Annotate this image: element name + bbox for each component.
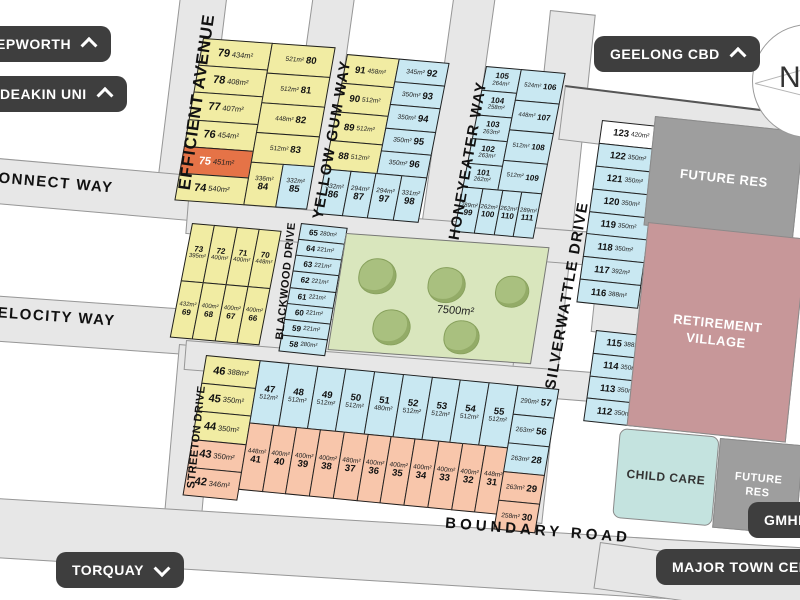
lot-number-label: 66 <box>248 314 258 323</box>
lot-number-label: 32 <box>462 476 474 487</box>
lot-area-label: 512m² <box>356 125 376 134</box>
lot-number-label: 75 <box>198 155 212 168</box>
lot-number-label: 36 <box>367 467 379 478</box>
lot-area-label: 512m² <box>512 142 530 149</box>
lot-area-label: 512m² <box>402 408 421 417</box>
lot-number-label: 68 <box>203 310 213 319</box>
lot-area-label: 512m² <box>506 172 524 179</box>
lot-number-label: 81 <box>300 85 312 97</box>
lot-number-label: 109 <box>525 173 540 183</box>
lot-number-label: 59 <box>291 324 301 334</box>
lot-area-label: 521m² <box>285 56 305 64</box>
parcel-label: FUTURE RES <box>729 470 787 502</box>
lot-number-label: 31 <box>486 478 498 489</box>
lot-number-label: 119 <box>600 218 617 231</box>
poi-pill-label: GEELONG CBD <box>610 46 720 62</box>
lot-number-label: 85 <box>288 185 300 196</box>
lot-area-label: 512m² <box>361 96 381 105</box>
lot-number-label: 111 <box>520 214 534 223</box>
parcel-retirement-village[interactable]: RETIREMENT VILLAGE <box>627 222 800 443</box>
lot-area-label: 524m² <box>524 82 542 89</box>
lot-area-label: 221m² <box>302 326 320 334</box>
lot-area-label: 540m² <box>207 184 230 194</box>
lot-area-label: 280m² <box>319 231 337 239</box>
lot-area-label: 420m² <box>630 132 649 141</box>
lot-area-label: 290m² <box>520 397 540 406</box>
lot-number-label: 106 <box>542 82 557 92</box>
lot-area-label: 280m² <box>300 342 318 350</box>
lot-area-label: 388m² <box>227 367 250 378</box>
lot-area-label: 263m² <box>478 153 496 161</box>
lot-number-label: 87 <box>352 193 364 204</box>
park-area-label: 7500m² <box>436 303 475 317</box>
lot-area-label: 350m² <box>627 154 646 163</box>
lot-number-label: 91 <box>354 64 367 76</box>
lot-number-label: 116 <box>590 286 607 299</box>
lot-area-label: 350m² <box>614 245 633 254</box>
lot-area-label: 350m² <box>401 91 421 100</box>
lot-number-label: 83 <box>289 144 301 156</box>
lot-area-label: 350m² <box>621 200 640 209</box>
lot-area-label: 408m² <box>226 77 249 87</box>
lot-number-label: 94 <box>417 113 430 125</box>
lot-number-label: 110 <box>500 212 514 221</box>
estate-masterplan-map: 79434m²78408m²77407m²76454m²75451m²74540… <box>0 0 800 600</box>
lot-area-label: 345m² <box>406 68 426 77</box>
lot-number-label: 38 <box>320 462 332 473</box>
lot-number-label: 92 <box>426 68 439 80</box>
parcel-label: FUTURE RES <box>679 166 768 191</box>
poi-pill-label: EPWORTH <box>0 36 71 52</box>
lot-number-label: 33 <box>438 473 450 484</box>
lot-number-label: 29 <box>526 483 538 495</box>
parcel-label: CHILD CARE <box>626 466 706 488</box>
lot-area-label: 263m² <box>515 426 535 435</box>
lot-area-label: 512m² <box>316 399 335 408</box>
lot-number-label: 112 <box>596 405 613 418</box>
tree-icon <box>356 257 400 295</box>
lot-107[interactable]: 448m²107 <box>509 99 560 134</box>
lot-116[interactable]: 116388m² <box>576 279 641 309</box>
poi-pill-torquay[interactable]: TORQUAY <box>56 552 184 588</box>
poi-pill-gmhba[interactable]: GMHBA <box>748 502 800 538</box>
lot-area-label: 350m² <box>213 451 236 462</box>
lot-number-label: 44 <box>203 420 217 433</box>
chevron-up-icon <box>81 37 98 54</box>
lot-area-label: 512m² <box>280 86 300 94</box>
lot-area-label: 454m² <box>217 130 240 140</box>
lot-area-label: 350m² <box>217 423 240 434</box>
lot-number-label: 88 <box>337 150 350 162</box>
lot-number-label: 98 <box>403 197 415 208</box>
lot-area-label: 350m² <box>392 137 412 146</box>
poi-pill-geelong-cbd[interactable]: GEELONG CBD <box>594 36 760 72</box>
lot-number-label: 65 <box>308 228 318 238</box>
lot-number-label: 34 <box>415 471 427 482</box>
lot-106[interactable]: 524m²106 <box>515 69 566 104</box>
lot-area-label: 350m² <box>388 159 408 168</box>
chevron-up-icon <box>96 87 113 104</box>
lot-number-label: 41 <box>249 455 261 466</box>
lot-number-label: 117 <box>593 264 610 277</box>
lot-number-label: 84 <box>256 183 268 194</box>
lot-area-label: 221m² <box>317 247 335 255</box>
lot-number-label: 46 <box>212 364 226 377</box>
lot-area-label: 221m² <box>311 278 329 286</box>
lot-number-label: 57 <box>540 397 552 409</box>
lot-area-label: 264m² <box>492 80 510 88</box>
lot-area-label: 258m² <box>487 104 505 112</box>
lot-area-label: 448m² <box>274 115 294 123</box>
lot-number-label: 40 <box>273 457 285 468</box>
lot-area-label: 350m² <box>397 114 417 123</box>
lot-number-label: 28 <box>530 454 542 466</box>
lot-area-label: 400m² <box>210 255 228 263</box>
lot-number-label: 114 <box>602 360 619 373</box>
lot-area-label: 480m² <box>373 405 392 414</box>
lot-area-label: 346m² <box>208 479 231 490</box>
lot-number-label: 45 <box>208 392 222 405</box>
chevron-up-icon <box>729 47 746 64</box>
lot-number-label: 118 <box>597 241 614 254</box>
compass-north-label: N <box>779 61 800 95</box>
lot-number-label: 122 <box>609 150 626 163</box>
lot-number-label: 89 <box>343 122 356 134</box>
poi-pill-label: GMHBA <box>764 512 800 528</box>
parcel-child-care[interactable]: CHILD CARE <box>612 428 719 526</box>
lot-number-label: 76 <box>202 128 216 141</box>
poi-pill-deakin-uni[interactable]: DEAKIN UNI <box>0 76 127 112</box>
parcel-label: RETIREMENT VILLAGE <box>660 310 773 354</box>
poi-pill-label: TORQUAY <box>72 562 144 578</box>
lot-number-label: 96 <box>408 159 421 171</box>
parcel-future-res-north[interactable]: FUTURE RES <box>644 116 800 241</box>
lot-number-label: 61 <box>297 292 307 302</box>
lot-area-label: 350m² <box>222 395 245 406</box>
poi-pill-epworth[interactable]: EPWORTH <box>0 26 111 62</box>
lot-area-label: 263m² <box>506 483 526 492</box>
lot-area-label: 458m² <box>367 67 387 76</box>
lot-number-label: 123 <box>612 128 629 141</box>
lot-number-label: 80 <box>305 55 317 67</box>
lot-number-label: 113 <box>599 383 616 396</box>
lot-area-label: 512m² <box>269 145 289 153</box>
lot-number-label: 60 <box>294 308 304 318</box>
lot-area-label: 221m² <box>305 310 323 318</box>
lot-number-label: 90 <box>348 93 361 105</box>
lot-area-label: 395m² <box>188 253 206 261</box>
lot-area-label: 388m² <box>608 290 627 299</box>
lot-area-label: 512m² <box>345 402 364 411</box>
lot-number-label: 115 <box>606 338 623 351</box>
lot-number-label: 93 <box>421 91 434 103</box>
lot-area-label: 263m² <box>482 129 500 137</box>
lot-number-label: 79 <box>217 47 231 60</box>
lot-number-label: 97 <box>377 195 389 206</box>
lot-area-label: 263m² <box>510 454 530 463</box>
lot-area-label: 512m² <box>431 410 450 419</box>
lot-number-label: 77 <box>207 101 221 114</box>
lot-number-label: 37 <box>344 464 356 475</box>
lot-number-label: 63 <box>303 260 313 270</box>
lot-area-label: 448m² <box>518 112 536 119</box>
lot-area-label: 434m² <box>231 50 254 60</box>
lot-area-label: 221m² <box>314 262 332 270</box>
lot-area-label: 512m² <box>259 394 278 403</box>
lot-area-label: 512m² <box>350 153 370 162</box>
lot-area-label: 451m² <box>212 157 235 167</box>
lot-number-label: 107 <box>536 112 551 122</box>
poi-pill-label: DEAKIN UNI <box>0 86 87 102</box>
tree-icon <box>493 275 532 309</box>
lot-area-label: 400m² <box>232 257 250 265</box>
lot-area-label: 221m² <box>308 294 326 302</box>
chevron-down-icon <box>153 560 170 577</box>
lot-number-label: 69 <box>181 308 191 317</box>
lot-area-label: 448m² <box>255 259 273 267</box>
poi-pill-label: MAJOR TOWN CENTRE <box>672 559 800 575</box>
lot-number-label: 120 <box>603 196 620 209</box>
lot-area-label: 262m² <box>473 177 491 185</box>
lot-area-label: 407m² <box>222 103 245 113</box>
park-reserve[interactable]: 7500m² <box>327 233 549 364</box>
lot-number-label: 95 <box>412 136 425 148</box>
lot-area-label: 350m² <box>617 222 636 231</box>
tree-icon <box>425 266 469 304</box>
lot-number-label: 100 <box>480 210 495 219</box>
lot-area-label: 512m² <box>459 413 478 422</box>
lot-area-label: 392m² <box>611 268 630 277</box>
lot-area-label: 512m² <box>488 416 507 425</box>
lot-number-label: 82 <box>295 115 307 127</box>
lot-area-label: 512m² <box>287 397 306 406</box>
lot-number-label: 39 <box>297 460 309 471</box>
tree-icon <box>441 319 482 355</box>
lot-number-label: 67 <box>225 312 235 321</box>
lot-number-label: 62 <box>300 276 310 286</box>
lot-number-label: 121 <box>606 173 623 186</box>
lot-number-label: 58 <box>289 339 299 349</box>
tree-icon <box>370 308 414 346</box>
lot-number-label: 35 <box>391 469 403 480</box>
poi-pill-major-town-centre[interactable]: MAJOR TOWN CENTRE <box>656 549 800 585</box>
lot-number-label: 78 <box>212 74 226 87</box>
lot-number-label: 108 <box>531 143 546 153</box>
lot-area-label: 350m² <box>624 177 643 186</box>
lot-number-label: 64 <box>305 244 315 254</box>
lot-number-label: 56 <box>535 426 547 438</box>
